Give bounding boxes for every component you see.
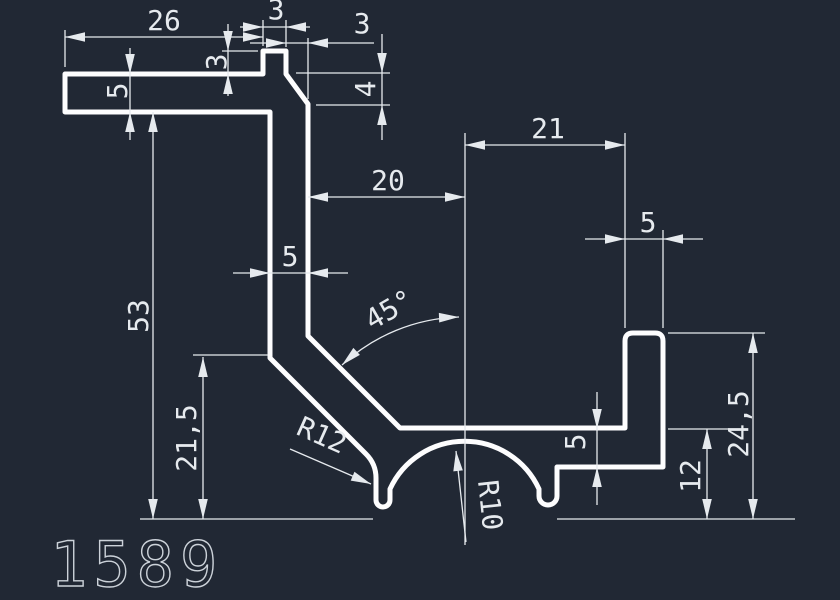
part-number: 1589 (50, 528, 223, 600)
dim-text-5b: 5 (640, 206, 657, 239)
dim-text-12: 12 (674, 459, 707, 493)
dim-text-3b: 3 (354, 7, 371, 40)
dim-text-r10: R10 (471, 478, 509, 532)
dim-text-3a: 3 (268, 0, 285, 26)
dim-text-215: 21,5 (170, 404, 203, 471)
dim-text-3c: 3 (200, 54, 233, 71)
dim-text-20: 20 (371, 164, 405, 197)
dim-text-53: 53 (122, 299, 155, 333)
cad-drawing: 26 3 3 3 4 5 53 21,5 20 21 5 5 5 12 24,5… (0, 0, 840, 600)
dim-text-5c: 5 (559, 434, 592, 451)
dim-text-21: 21 (531, 112, 565, 145)
dim-text-4: 4 (349, 81, 382, 98)
dim-text-5a: 5 (101, 83, 134, 100)
dim-text-5w: 5 (282, 240, 299, 273)
dim-text-245: 24,5 (722, 390, 755, 457)
cad-canvas: 26 3 3 3 4 5 53 21,5 20 21 5 5 5 12 24,5… (0, 0, 840, 600)
dim-text-26: 26 (147, 4, 181, 37)
